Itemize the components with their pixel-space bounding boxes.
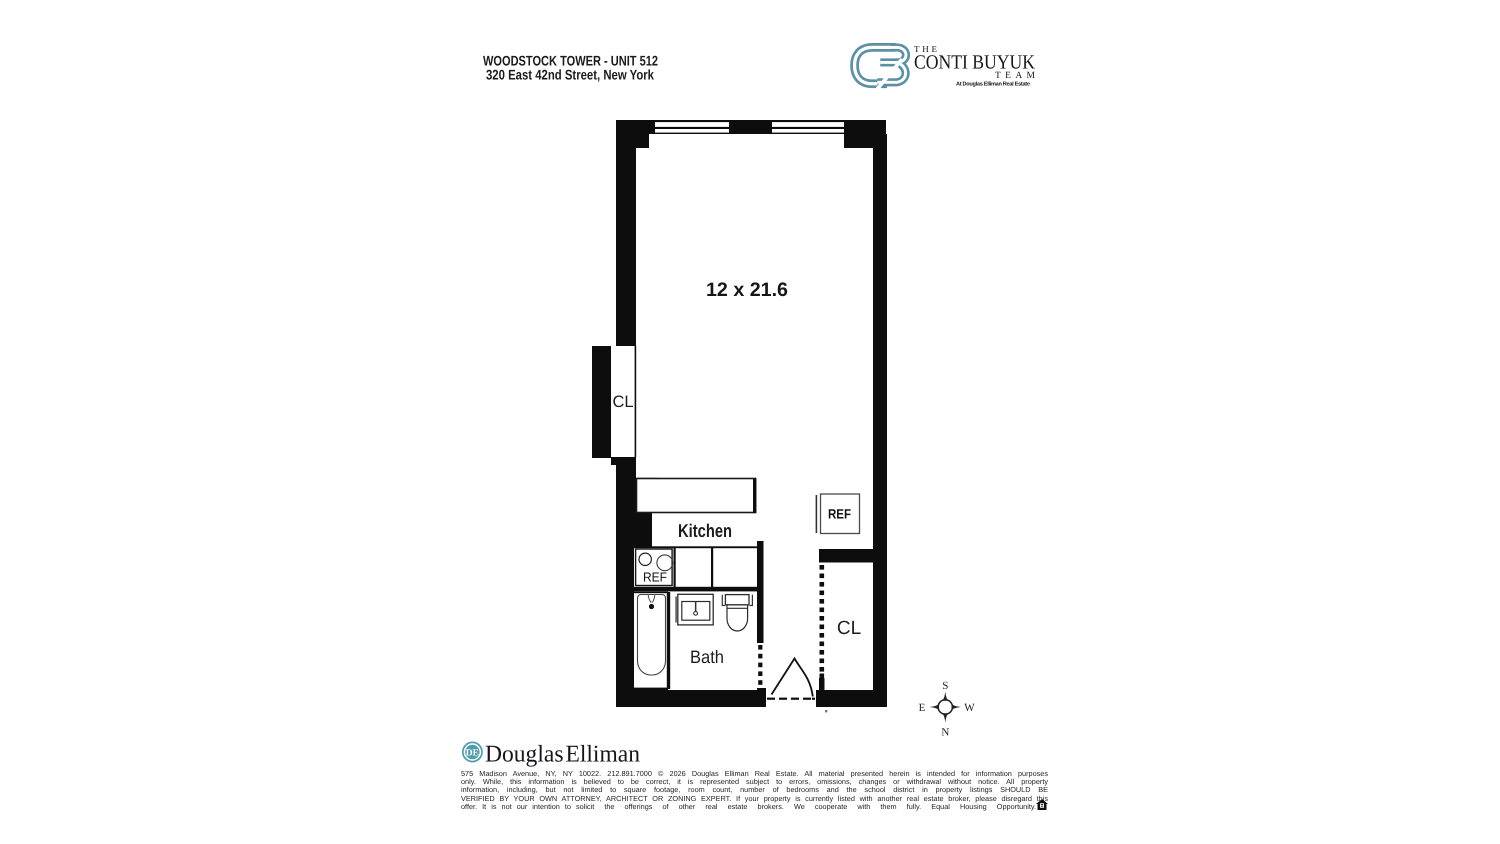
svg-text:N: N xyxy=(941,727,949,739)
svg-text:E: E xyxy=(919,702,926,714)
svg-text:Bath: Bath xyxy=(690,647,724,667)
svg-text:12 x 21.6: 12 x 21.6 xyxy=(706,279,788,301)
svg-text:REF: REF xyxy=(828,507,851,522)
svg-text:W: W xyxy=(964,702,975,714)
svg-text:REF: REF xyxy=(643,570,667,585)
svg-text:DE: DE xyxy=(466,749,479,759)
svg-text:S: S xyxy=(942,680,948,692)
svg-text:Douglas Elliman: Douglas Elliman xyxy=(485,742,640,768)
svg-text:CL: CL xyxy=(837,618,861,639)
svg-text:CL: CL xyxy=(612,393,633,411)
svg-text:Kitchen: Kitchen xyxy=(678,520,732,541)
